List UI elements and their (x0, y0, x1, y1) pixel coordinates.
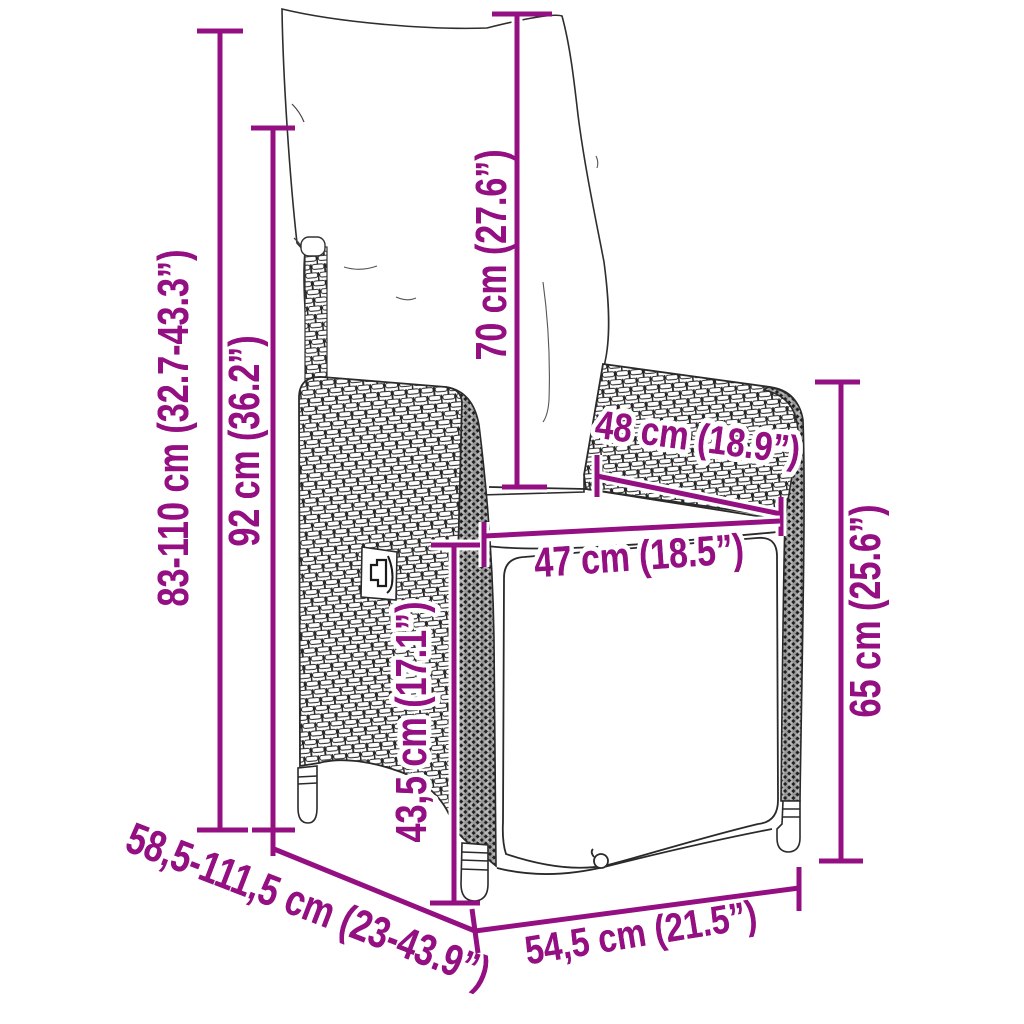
svg-text:65 cm (25.6”): 65 cm (25.6”) (841, 505, 890, 718)
svg-text:43,5 cm (17.1”): 43,5 cm (17.1”) (387, 602, 436, 843)
svg-text:70 cm (27.6”): 70 cm (27.6”) (467, 150, 516, 361)
svg-text:83-110 cm (32.7-43.3”): 83-110 cm (32.7-43.3”) (149, 250, 198, 607)
svg-text:92 cm (36.2”): 92 cm (36.2”) (220, 336, 269, 547)
svg-text:54,5 cm (21.5”): 54,5 cm (21.5”) (522, 893, 760, 973)
